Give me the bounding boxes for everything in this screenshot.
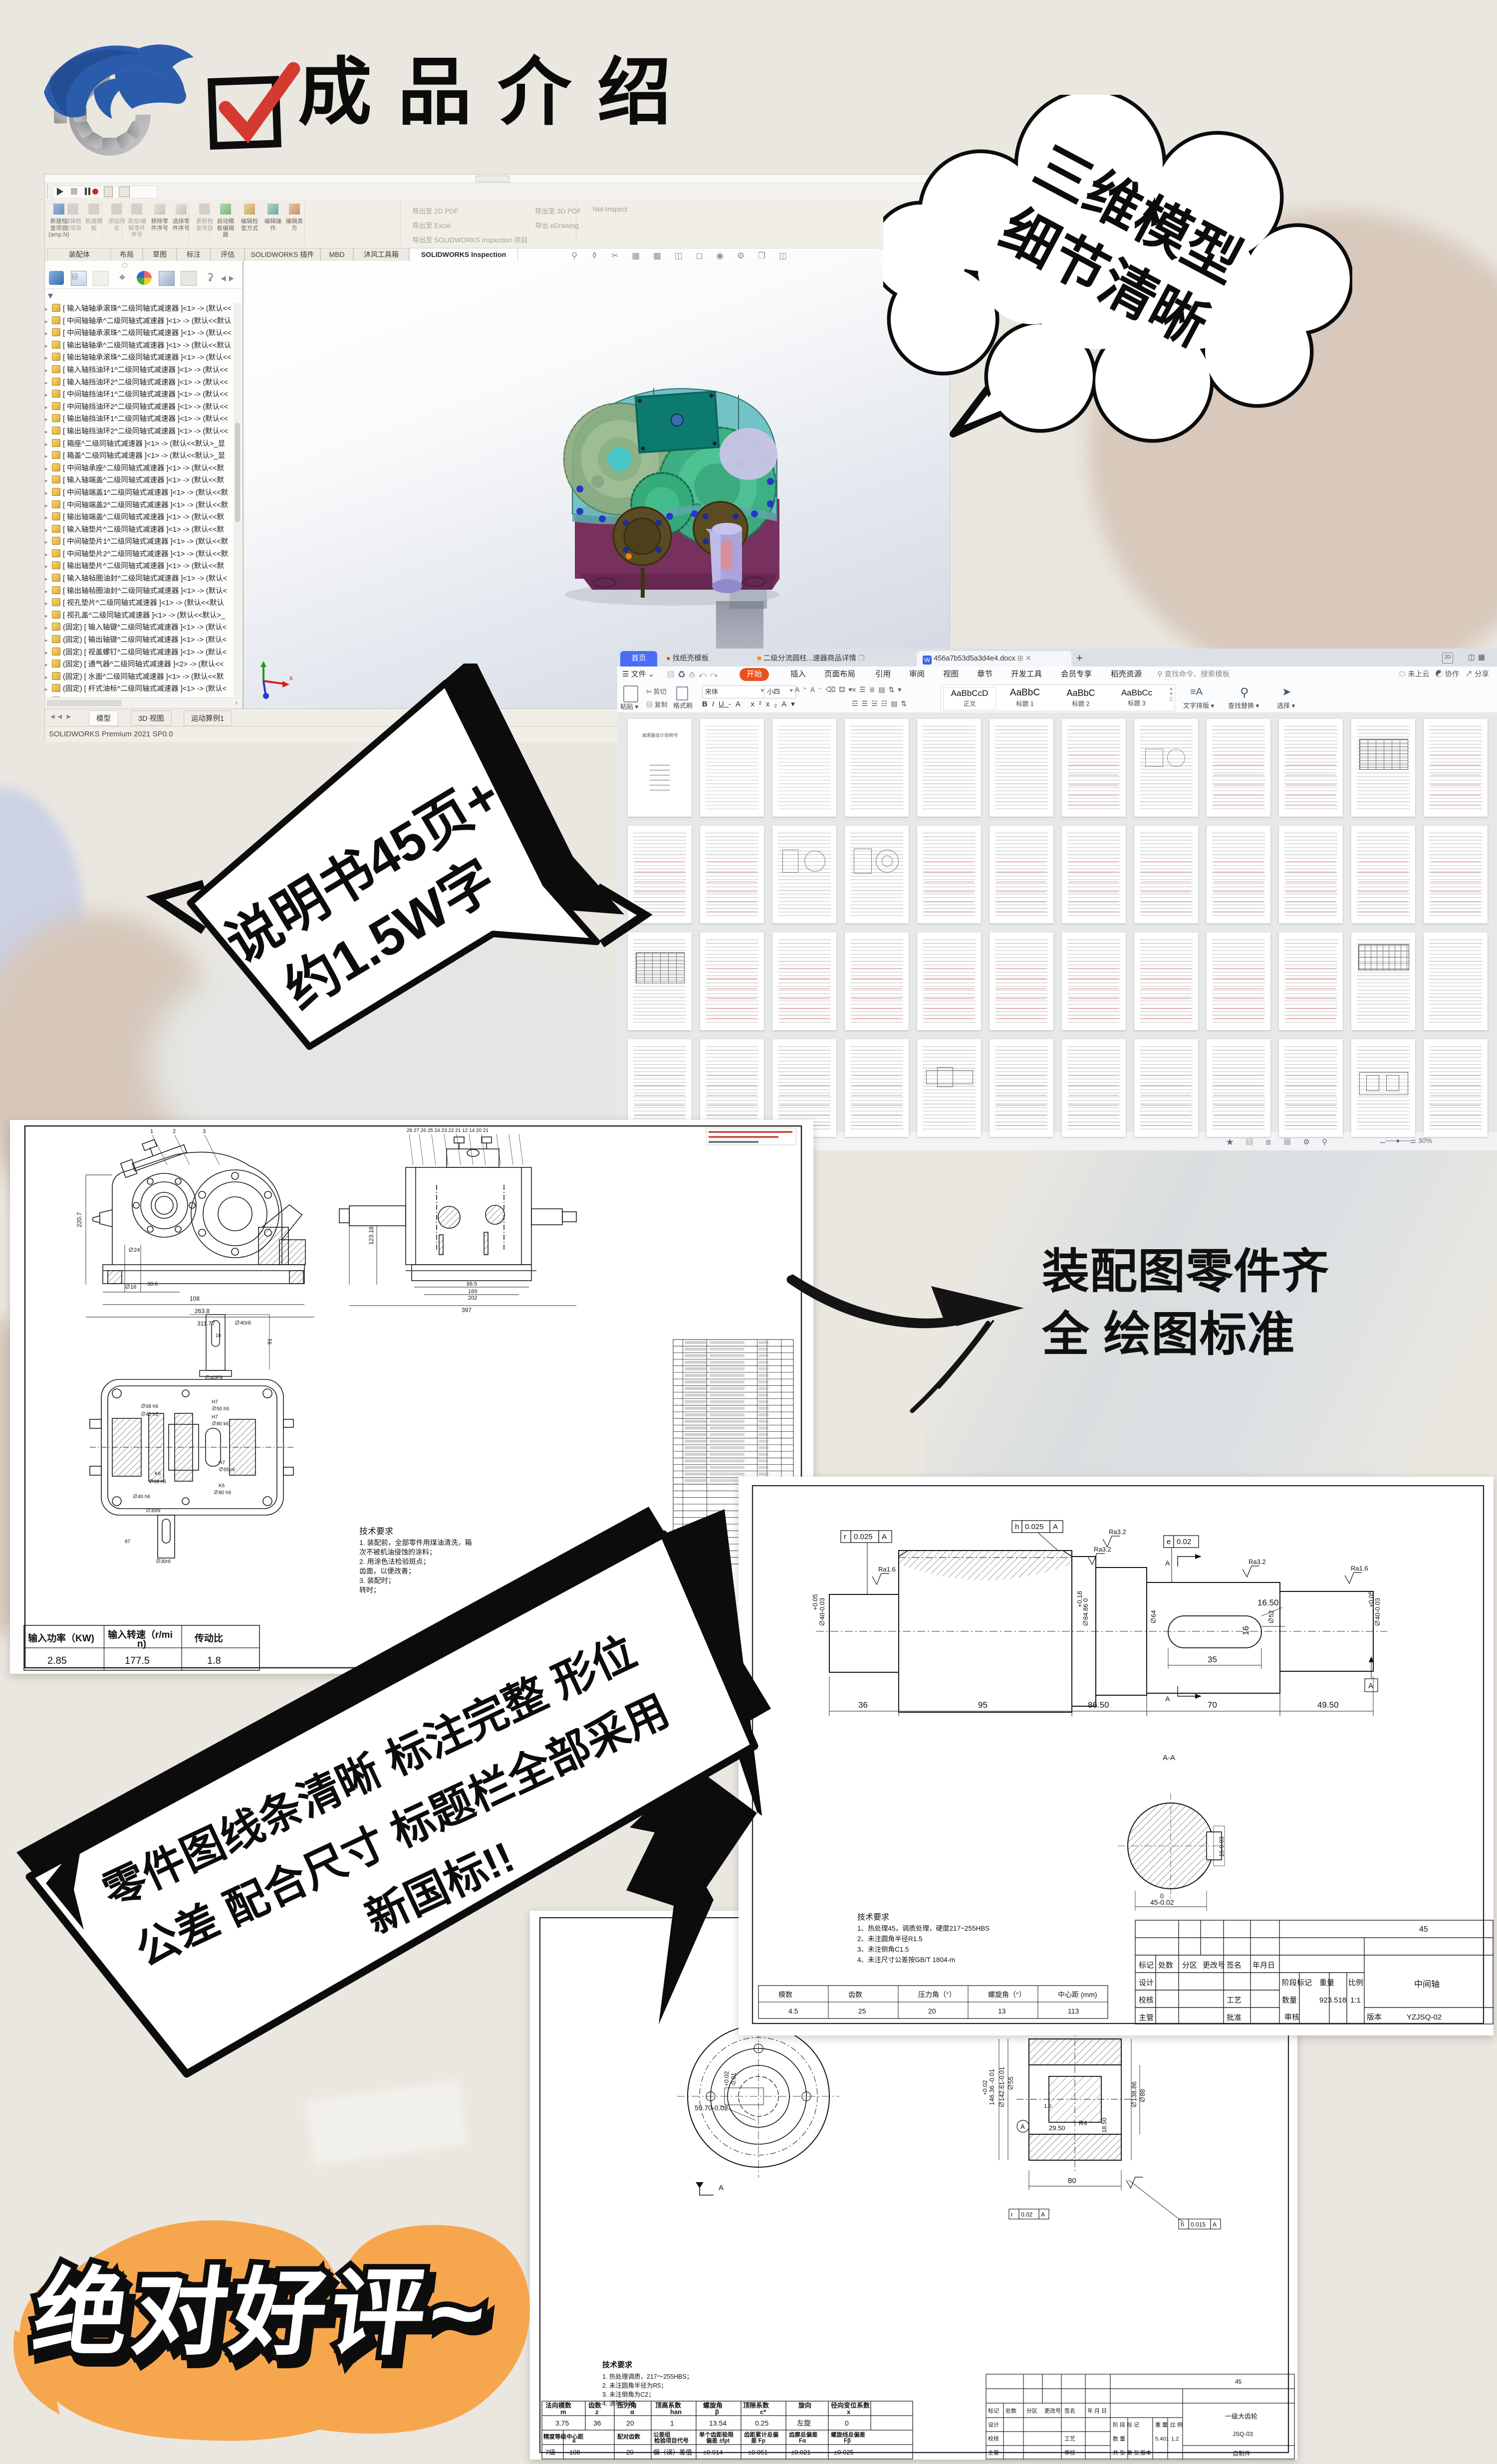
svg-text:工艺: 工艺 — [1227, 1996, 1242, 2005]
svg-text:∅68 h6: ∅68 h6 — [141, 1404, 158, 1409]
svg-text:20: 20 — [928, 2007, 936, 2015]
svg-text:1:1: 1:1 — [1350, 1996, 1361, 2005]
svg-text:配对齿数: 配对齿数 — [617, 2433, 640, 2440]
svg-text:左旋: 左旋 — [797, 2419, 811, 2427]
svg-text:单个齿距极限: 单个齿距极限 — [699, 2431, 734, 2438]
svg-text:α: α — [630, 2408, 634, 2416]
svg-text:版本: 版本 — [1140, 2449, 1151, 2456]
svg-text:A: A — [1020, 2123, 1025, 2130]
svg-text:∅16: ∅16 — [125, 1284, 136, 1290]
svg-text:20: 20 — [626, 2449, 633, 2456]
svg-text:923.518: 923.518 — [1319, 1996, 1346, 2005]
svg-text:签名: 签名 — [1227, 1961, 1242, 1970]
svg-text:86.50: 86.50 — [1088, 1700, 1109, 1710]
svg-text:16: 16 — [1241, 1626, 1250, 1635]
svg-text:K6: K6 — [155, 1471, 161, 1477]
svg-text:h: h — [1181, 2221, 1184, 2228]
svg-text:0: 0 — [845, 2419, 849, 2427]
svg-text:齿距累计总偏: 齿距累计总偏 — [744, 2431, 778, 2438]
svg-text:A: A — [1041, 2211, 1045, 2218]
svg-text:阶段标记: 阶段标记 — [1282, 1979, 1312, 1987]
svg-text:重 量: 重 量 — [1155, 2421, 1168, 2428]
svg-text:Ra1.6: Ra1.6 — [1351, 1565, 1368, 1572]
svg-text:∅40 h5: ∅40 h5 — [141, 1412, 158, 1417]
svg-text:80: 80 — [1068, 2177, 1076, 2185]
svg-text:±0.025: ±0.025 — [834, 2449, 854, 2456]
svg-text:审核: 审核 — [1064, 2449, 1075, 2456]
svg-text:A: A — [1165, 1695, 1170, 1703]
svg-text:更改号: 更改号 — [1203, 1961, 1225, 1970]
svg-text:Ra3.2: Ra3.2 — [1248, 1558, 1266, 1566]
svg-text:径向变位系数: 径向变位系数 — [831, 2402, 870, 2409]
svg-text:35: 35 — [1208, 1655, 1217, 1664]
svg-text:差 Fp: 差 Fp — [751, 2437, 765, 2444]
svg-text:91: 91 — [267, 1339, 273, 1344]
svg-text:28 27 26 25 24 23 22 21 12 14: 28 27 26 25 24 23 22 21 12 14 20 21 — [407, 1128, 489, 1133]
svg-text:公差组: 公差组 — [653, 2431, 671, 2438]
svg-text:∅55: ∅55 — [1007, 2077, 1014, 2090]
svg-text:A: A — [882, 1533, 887, 1541]
svg-text:∅142.61-0.01: ∅142.61-0.01 — [998, 2067, 1005, 2108]
svg-text:36: 36 — [858, 1700, 868, 1710]
svg-text:4、未注尺寸公差按GB/T 1804-m: 4、未注尺寸公差按GB/T 1804-m — [857, 1956, 955, 1964]
svg-text:±0.021: ±0.021 — [791, 2449, 811, 2456]
svg-text:29.50: 29.50 — [1049, 2124, 1065, 2132]
svg-text:x: x — [847, 2408, 851, 2416]
svg-text:审核: 审核 — [1284, 2013, 1299, 2021]
svg-text:202: 202 — [468, 1295, 477, 1301]
svg-text:2: 2 — [173, 1128, 176, 1134]
svg-text:设计: 设计 — [988, 2422, 999, 2428]
svg-text:1.6: 1.6 — [1044, 2103, 1051, 2109]
svg-text:H7: H7 — [219, 1460, 225, 1466]
svg-text:Fβ: Fβ — [844, 2438, 851, 2444]
svg-text:分区: 分区 — [1026, 2408, 1037, 2414]
svg-text:146.36 -0.01: 146.36 -0.01 — [988, 2069, 996, 2105]
svg-text:一级大齿轮: 一级大齿轮 — [1225, 2413, 1257, 2420]
svg-text:阶 段 标 记: 阶 段 标 记 — [1113, 2421, 1139, 2428]
svg-text:数量: 数量 — [1282, 1996, 1297, 2005]
svg-text:0.015: 0.015 — [1191, 2221, 1206, 2228]
svg-text:16-0.03: 16-0.03 — [1218, 1836, 1225, 1857]
svg-text:0.025: 0.025 — [854, 1533, 873, 1541]
svg-text:1、热处理45，调质处理，硬度217~255HBS: 1、热处理45，调质处理，硬度217~255HBS — [857, 1925, 990, 1932]
svg-text:Fα: Fα — [799, 2438, 806, 2444]
svg-text:∅68 h6: ∅68 h6 — [149, 1479, 166, 1485]
svg-text:∅80 k6: ∅80 k6 — [212, 1421, 229, 1427]
svg-text:分区: 分区 — [1182, 1961, 1197, 1970]
svg-text:∅40-0.03: ∅40-0.03 — [1374, 1598, 1381, 1626]
svg-text:220.7: 220.7 — [76, 1212, 83, 1227]
svg-text:z: z — [595, 2408, 599, 2416]
svg-text:45-0.02: 45-0.02 — [1150, 1898, 1174, 1906]
svg-text:c*: c* — [760, 2408, 766, 2416]
svg-text:主管: 主管 — [1139, 2014, 1154, 2022]
svg-text:A: A — [1368, 1682, 1373, 1690]
svg-text:R4: R4 — [1079, 2119, 1087, 2127]
svg-text:校核: 校核 — [1139, 1996, 1154, 2005]
svg-text:3、未注倒角C1.5: 3、未注倒角C1.5 — [857, 1946, 909, 1953]
svg-text:齿数: 齿数 — [848, 1991, 862, 1999]
svg-text:108: 108 — [569, 2449, 580, 2456]
svg-text:工艺: 工艺 — [1064, 2436, 1075, 2442]
svg-text:Ra1.6: Ra1.6 — [878, 1566, 896, 1573]
svg-text:设计: 设计 — [1139, 1979, 1154, 1987]
svg-text:螺旋角（°）: 螺旋角（°） — [988, 1991, 1026, 1999]
svg-text:263.8: 263.8 — [195, 1308, 210, 1315]
svg-text:YZJSQ-02: YZJSQ-02 — [1407, 2013, 1442, 2021]
svg-text:0.025: 0.025 — [1025, 1523, 1044, 1531]
svg-text:0.25: 0.25 — [755, 2419, 768, 2427]
svg-text:∅40F9: ∅40F9 — [205, 1375, 223, 1381]
svg-text:模数: 模数 — [778, 1991, 792, 1999]
svg-text:36: 36 — [593, 2419, 601, 2427]
svg-text:∅40r6: ∅40r6 — [235, 1320, 251, 1326]
svg-text:45: 45 — [1235, 2378, 1242, 2385]
svg-text:螺旋角: 螺旋角 — [703, 2402, 723, 2409]
svg-text:校核: 校核 — [988, 2435, 999, 2442]
svg-text:16: 16 — [216, 1333, 222, 1339]
svg-text:49.50: 49.50 — [1317, 1700, 1339, 1710]
svg-text:签名: 签名 — [1064, 2407, 1075, 2414]
svg-text:±0.051: ±0.051 — [748, 2449, 768, 2456]
svg-text:∅138.86: ∅138.86 — [1130, 2081, 1138, 2108]
svg-text:25: 25 — [858, 2007, 866, 2015]
svg-text:1: 1 — [150, 1128, 153, 1134]
svg-text:H7: H7 — [212, 1399, 218, 1405]
svg-text:批准: 批准 — [1227, 2014, 1242, 2022]
svg-text:95: 95 — [978, 1700, 988, 1710]
svg-text:偏（误）差值: 偏（误）差值 — [653, 2449, 692, 2456]
svg-text:压力角（°）: 压力角（°） — [918, 1991, 956, 1999]
svg-text:45: 45 — [1419, 1925, 1428, 1934]
svg-text:处数: 处数 — [1005, 2408, 1016, 2414]
svg-text:0.02: 0.02 — [1021, 2211, 1033, 2218]
svg-text:JSQ-03: JSQ-03 — [1233, 2431, 1253, 2438]
svg-text:h: h — [1015, 1523, 1019, 1531]
svg-text:标记: 标记 — [988, 2407, 999, 2414]
svg-text:88.5: 88.5 — [467, 1281, 477, 1287]
svg-text:m: m — [560, 2408, 566, 2416]
svg-text:+0.05: +0.05 — [1367, 1591, 1375, 1607]
svg-text:A: A — [1213, 2221, 1217, 2228]
svg-text:13: 13 — [998, 2007, 1006, 2015]
svg-text:r: r — [844, 1533, 846, 1541]
svg-text:比 例: 比 例 — [1170, 2421, 1183, 2428]
svg-text:∅64: ∅64 — [1150, 1610, 1157, 1624]
svg-text:a: a — [572, 2438, 576, 2444]
svg-text:∅52: ∅52 — [1267, 1610, 1275, 1624]
svg-text:113: 113 — [1068, 2007, 1079, 2015]
svg-text:β: β — [715, 2408, 719, 2416]
svg-text:标记: 标记 — [1139, 1961, 1154, 1970]
svg-text:A: A — [719, 2184, 724, 2192]
svg-text:+0.05: +0.05 — [811, 1594, 819, 1610]
svg-text:H7: H7 — [212, 1414, 218, 1420]
svg-text:A: A — [1165, 1559, 1170, 1567]
svg-text:处数: 处数 — [1158, 1961, 1173, 1970]
svg-text:数 量: 数 量 — [1113, 2436, 1125, 2442]
svg-text:中间轴: 中间轴 — [1414, 1980, 1440, 1989]
svg-text:4.5: 4.5 — [788, 2007, 798, 2015]
svg-text:r: r — [1011, 2211, 1013, 2218]
svg-text:齿廓总偏差: 齿廓总偏差 — [789, 2431, 818, 2438]
svg-text:20: 20 — [626, 2419, 634, 2427]
svg-text:∅88: ∅88 — [1139, 2089, 1146, 2103]
svg-text:技术要求: 技术要求 — [857, 1913, 889, 1922]
svg-text:检验项目代号: 检验项目代号 — [654, 2437, 689, 2444]
svg-text:e: e — [1167, 1538, 1171, 1546]
svg-text:螺旋线总偏差: 螺旋线总偏差 — [831, 2431, 865, 2438]
svg-text:主管: 主管 — [988, 2449, 999, 2456]
svg-text:年月日: 年月日 — [1252, 1961, 1275, 1970]
svg-text:∅50 h5: ∅50 h5 — [212, 1406, 229, 1412]
svg-text:18.50: 18.50 — [1101, 2118, 1108, 2133]
svg-text:∅40-0.03: ∅40-0.03 — [818, 1598, 826, 1626]
svg-text:30.6: 30.6 — [147, 1281, 158, 1287]
svg-text:397: 397 — [462, 1307, 472, 1314]
svg-text:重量: 重量 — [1319, 1979, 1334, 1987]
svg-text:旋向: 旋向 — [798, 2402, 811, 2409]
svg-text:Ra3.2: Ra3.2 — [1109, 1528, 1126, 1536]
svg-text:13.54: 13.54 — [709, 2419, 727, 2427]
svg-text:比例: 比例 — [1348, 1979, 1363, 1987]
svg-text:年 月 日: 年 月 日 — [1087, 2407, 1107, 2414]
svg-text:±0.014: ±0.014 — [703, 2449, 723, 2456]
svg-text:共 张 第 张: 共 张 第 张 — [1113, 2449, 1139, 2456]
svg-text:更改号: 更改号 — [1044, 2407, 1061, 2414]
svg-text:2、未注圆角半径R1.5: 2、未注圆角半径R1.5 — [857, 1935, 923, 1943]
svg-text:中心距 (mm): 中心距 (mm) — [1058, 1991, 1097, 1999]
svg-text:70: 70 — [1208, 1700, 1217, 1710]
svg-text:1: 1 — [670, 2419, 674, 2427]
svg-text:0.02: 0.02 — [1177, 1538, 1191, 1546]
svg-text:3: 3 — [203, 1128, 206, 1134]
svg-text:169: 169 — [468, 1289, 477, 1295]
svg-text:∅55 r6: ∅55 r6 — [219, 1467, 235, 1473]
svg-text:16.50: 16.50 — [1257, 1598, 1279, 1607]
svg-text:+0.18: +0.18 — [1076, 1591, 1083, 1607]
svg-text:108: 108 — [190, 1295, 200, 1302]
svg-text:偏差 ±fpt: 偏差 ±fpt — [706, 2437, 730, 2444]
svg-text:123.18: 123.18 — [368, 1226, 375, 1245]
svg-text:Ra3.2: Ra3.2 — [1094, 1546, 1111, 1553]
svg-text:+0.02: +0.02 — [982, 2080, 989, 2095]
svg-text:版本: 版本 — [1367, 2013, 1382, 2021]
svg-text:han: han — [670, 2408, 682, 2416]
svg-text:A-A: A-A — [1163, 1754, 1175, 1762]
svg-text:∅24: ∅24 — [128, 1247, 140, 1253]
svg-text:A: A — [1053, 1523, 1058, 1531]
svg-text:1,2: 1,2 — [1171, 2436, 1179, 2442]
svg-text:5.401: 5.401 — [1155, 2436, 1169, 2442]
svg-text:自制件: 自制件 — [1233, 2450, 1250, 2457]
